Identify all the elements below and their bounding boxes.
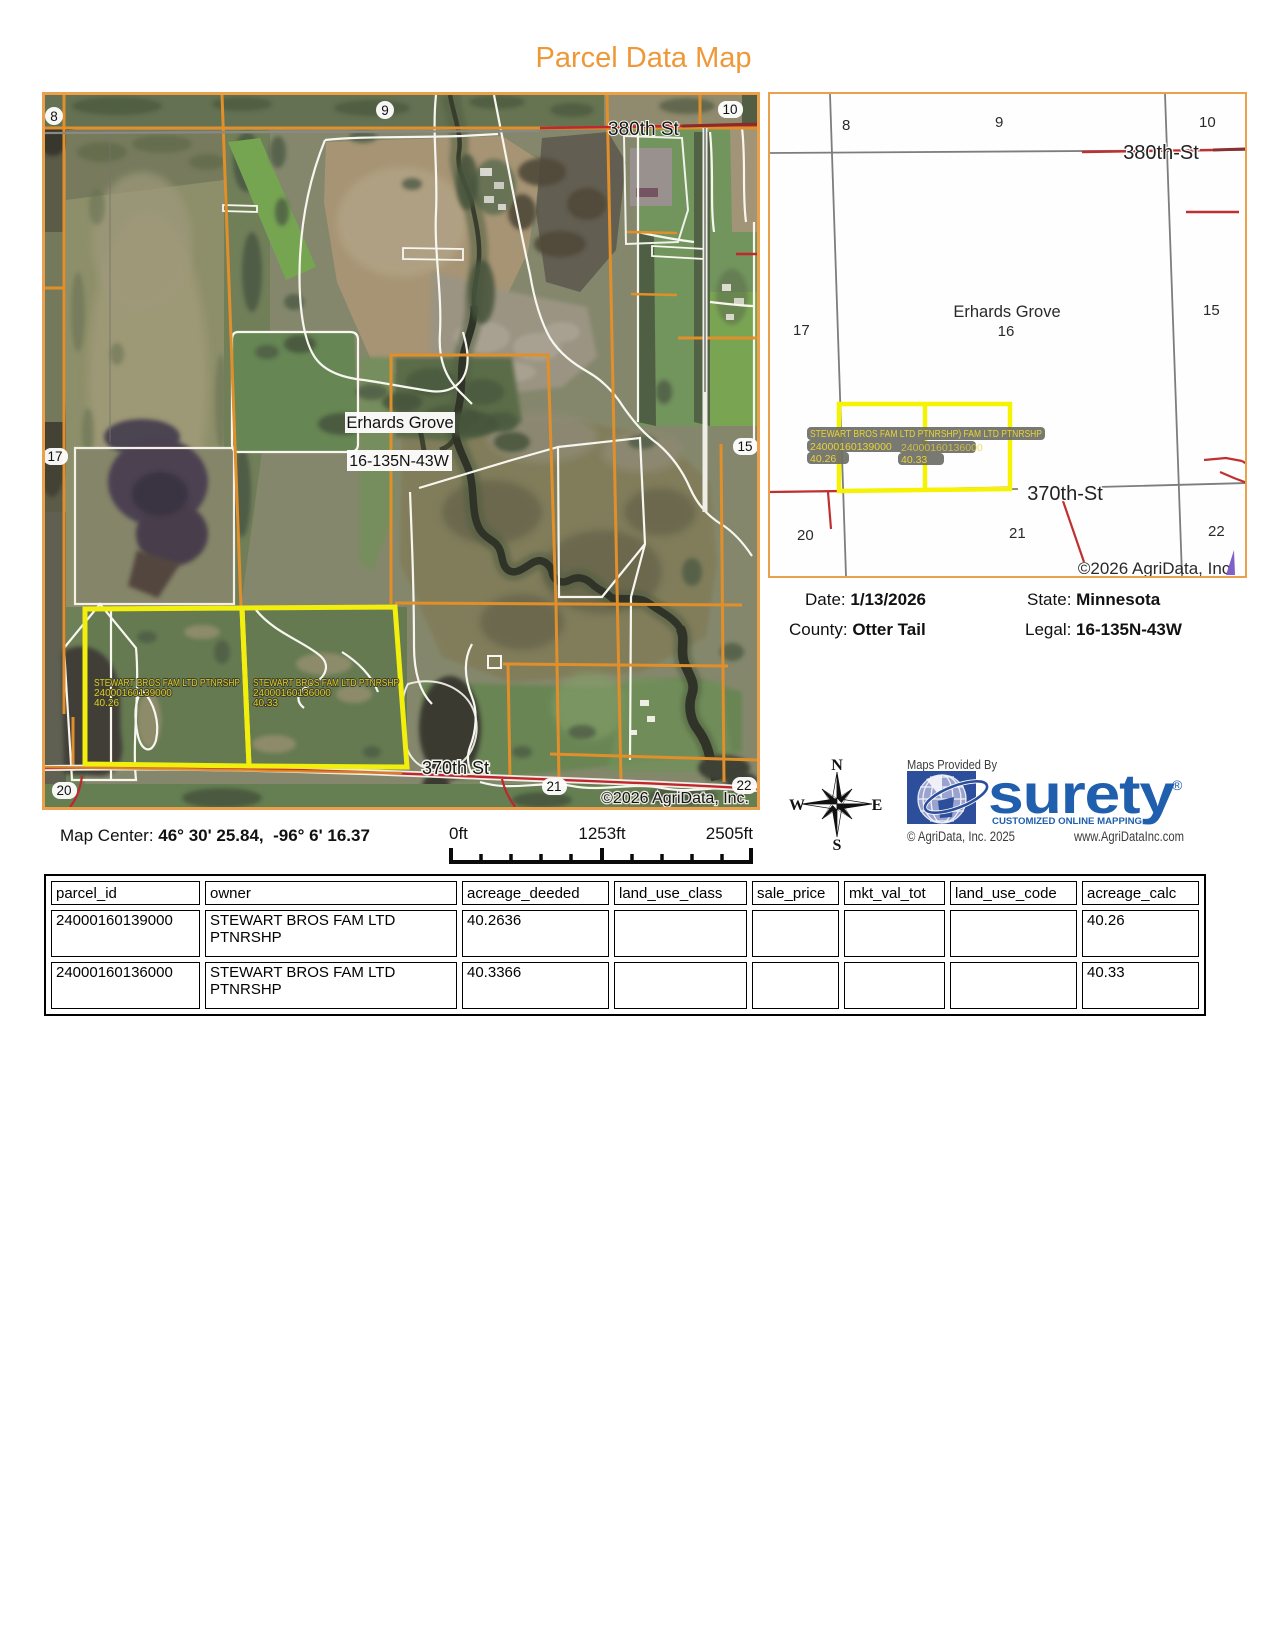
svg-text:380th-St: 380th-St — [1123, 142, 1199, 164]
svg-text:40.26: 40.26 — [94, 698, 119, 709]
svg-text:Maps Provided By: Maps Provided By — [907, 757, 997, 772]
svg-text:17: 17 — [793, 322, 810, 339]
svg-text:17: 17 — [47, 449, 62, 464]
svg-text:8: 8 — [842, 117, 850, 134]
svg-text:370th St: 370th St — [422, 758, 489, 778]
svg-text:S: S — [833, 837, 842, 854]
svg-text:21: 21 — [1009, 525, 1026, 542]
svg-text:16: 16 — [998, 323, 1015, 340]
svg-text:380th St: 380th St — [608, 119, 679, 140]
svg-text:20: 20 — [797, 527, 814, 544]
svg-text:© AgriData, Inc. 2025: © AgriData, Inc. 2025 — [907, 829, 1015, 844]
svg-text:2505ft: 2505ft — [706, 824, 754, 843]
svg-text:8: 8 — [50, 109, 58, 124]
svg-text:E: E — [872, 797, 883, 814]
svg-text:21: 21 — [546, 779, 561, 794]
svg-text:9: 9 — [381, 103, 389, 118]
svg-text:1253ft: 1253ft — [578, 824, 626, 843]
svg-text:9: 9 — [995, 114, 1003, 131]
svg-text:0ft: 0ft — [449, 824, 468, 843]
svg-text:15: 15 — [1203, 302, 1220, 319]
svg-text:CUSTOMIZED ONLINE MAPPING: CUSTOMIZED ONLINE MAPPING — [992, 816, 1142, 827]
svg-text:20: 20 — [56, 783, 71, 798]
svg-text:15: 15 — [737, 439, 752, 454]
svg-text:STEWART BROS FAM LTD PTNRSHP): STEWART BROS FAM LTD PTNRSHP) FAM LTD PT… — [810, 428, 1042, 440]
svg-text:24000160136000: 24000160136000 — [901, 442, 983, 454]
svg-text:10: 10 — [722, 102, 737, 117]
svg-text:Erhards Grove: Erhards Grove — [953, 303, 1060, 321]
svg-text:10: 10 — [1199, 114, 1216, 131]
svg-text:N: N — [831, 757, 843, 774]
svg-text:40.33: 40.33 — [901, 454, 927, 466]
svg-text:©2026 AgriData, Inc.: ©2026 AgriData, Inc. — [1078, 559, 1235, 576]
svg-text:www.AgriDataInc.com: www.AgriDataInc.com — [1073, 829, 1184, 844]
svg-text:40.26: 40.26 — [810, 453, 836, 465]
svg-text:24000160139000: 24000160139000 — [810, 441, 892, 453]
svg-text:370th-St: 370th-St — [1027, 483, 1103, 505]
svg-text:©2026 AgriData, Inc.: ©2026 AgriData, Inc. — [601, 790, 749, 807]
svg-text:Erhards Grove: Erhards Grove — [346, 414, 453, 432]
svg-text:40.33: 40.33 — [253, 698, 278, 709]
svg-text:W: W — [789, 797, 805, 814]
svg-text:22: 22 — [1208, 523, 1225, 540]
svg-text:®: ® — [1172, 777, 1183, 793]
svg-text:16-135N-43W: 16-135N-43W — [349, 453, 450, 470]
